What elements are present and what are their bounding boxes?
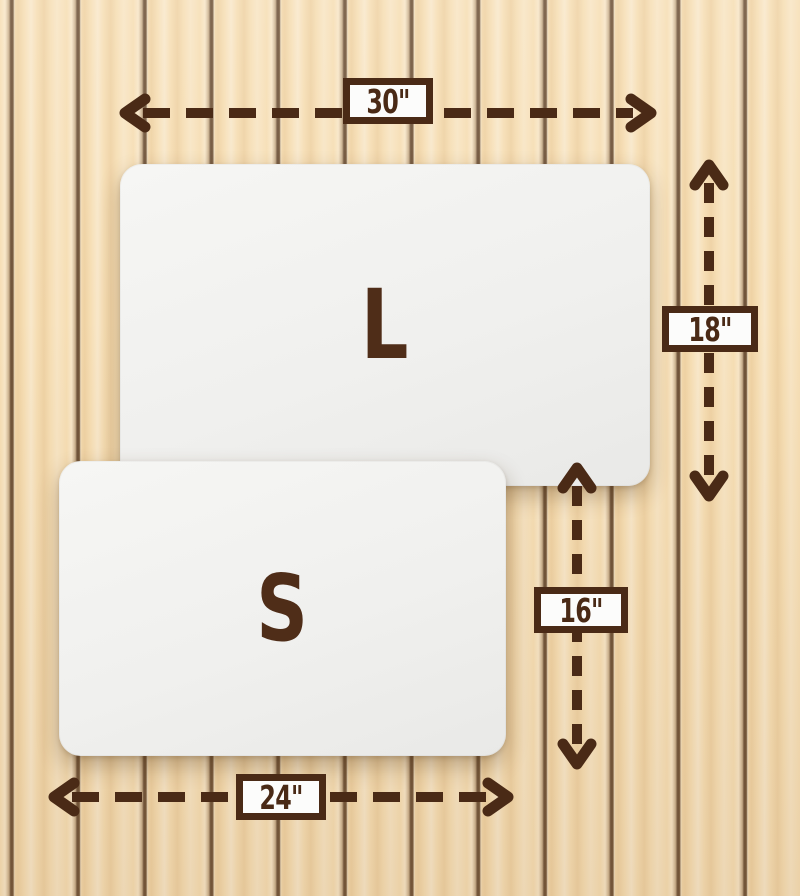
wood-plank-background: L S 30" 18" 16" 24"	[0, 0, 800, 896]
small-width-value: 24"	[259, 781, 302, 814]
small-height-value: 16"	[559, 594, 602, 627]
large-width-label: 30"	[343, 78, 433, 124]
large-mat-letter: L	[361, 277, 409, 373]
small-height-label: 16"	[534, 587, 628, 633]
large-mat: L	[120, 164, 650, 486]
small-mat: S	[59, 461, 506, 756]
large-height-value: 18"	[688, 313, 731, 346]
small-mat-letter: S	[257, 563, 309, 655]
large-height-label: 18"	[662, 306, 758, 352]
large-width-value: 30"	[366, 85, 409, 118]
small-width-label: 24"	[236, 774, 326, 820]
